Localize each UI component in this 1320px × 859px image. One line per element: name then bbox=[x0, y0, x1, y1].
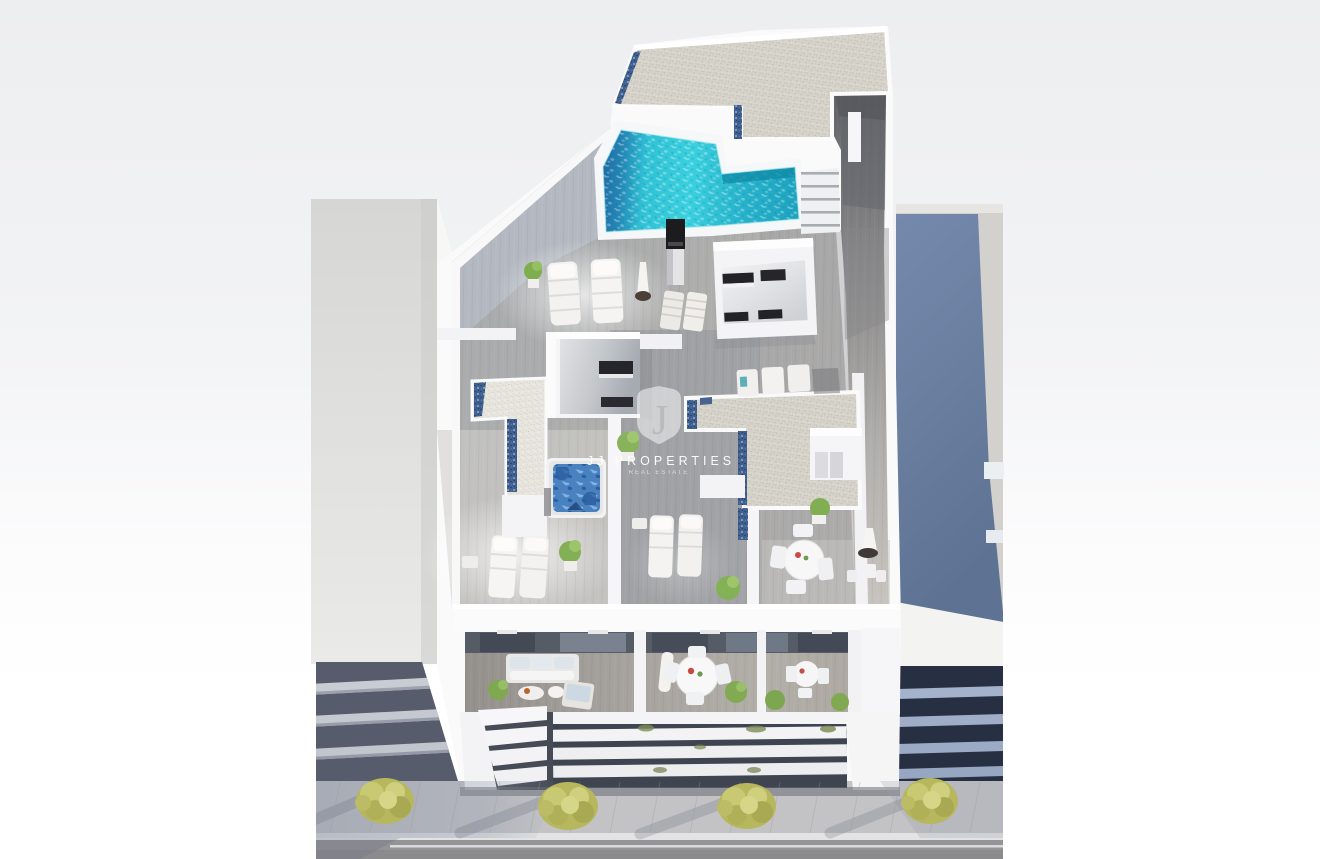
svg-text:JJ PROPERTIES: JJ PROPERTIES bbox=[587, 454, 735, 468]
svg-text:REAL ESTATE: REAL ESTATE bbox=[629, 470, 689, 476]
svg-text:J: J bbox=[652, 398, 668, 444]
